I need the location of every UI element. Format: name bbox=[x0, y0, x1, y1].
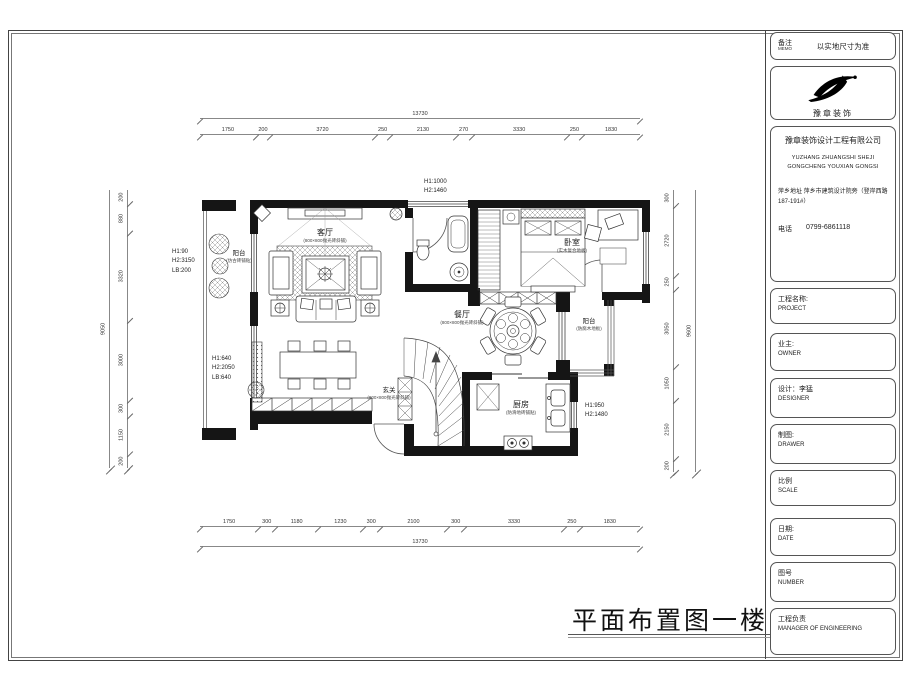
owner-block: 业主: OWNER bbox=[770, 333, 896, 371]
date-block: 日期: DATE bbox=[770, 518, 896, 556]
number-label: 图号 bbox=[778, 568, 888, 578]
company-address: 萍乡地址 萍乡市建筑设计院旁（登岸西路187-191#） bbox=[778, 187, 888, 209]
manager-label: 工程负责 bbox=[778, 614, 888, 624]
room-label-dining: 餐厅 (800×800抛光砖斜铺) bbox=[440, 310, 483, 325]
project-label-en: PROJECT bbox=[778, 306, 888, 312]
room-label-living: 客厅 (800×800抛光砖斜铺) bbox=[303, 228, 346, 243]
company-name: 豫章装饰设计工程有限公司 bbox=[778, 135, 888, 146]
dim-top-total: 13730 bbox=[200, 107, 640, 119]
project-label: 工程名称: bbox=[778, 294, 888, 304]
annotation-left-balcony: H1:90H2:3150LB:200 bbox=[172, 248, 195, 276]
drawer-label-en: DRAWER bbox=[778, 442, 888, 448]
date-label-en: DATE bbox=[778, 536, 888, 542]
phone-number: 0799-6861118 bbox=[806, 224, 850, 234]
dim-left-total: 9050 bbox=[98, 190, 110, 468]
scale-label-en: SCALE bbox=[778, 488, 888, 494]
drawing-title: 平面布置图一楼 bbox=[565, 601, 775, 637]
scale-label: 比例 bbox=[778, 476, 888, 486]
low-cabinet-band bbox=[252, 398, 372, 411]
dim-right-total: 9600 bbox=[684, 190, 696, 472]
kitchen-fixtures bbox=[477, 384, 570, 450]
drawing-sheet: 客厅 (800×800抛光砖斜铺) 餐厅 (800×800抛光砖斜铺) 玄关 (… bbox=[0, 0, 910, 690]
drawer-block: 制图: DRAWER bbox=[770, 424, 896, 464]
title-block-column: 备注 MEMO 以实地尺寸为准 豫章装饰 豫章装饰设计工程有限公司 YUZHAN… bbox=[770, 30, 898, 659]
company-logo-icon bbox=[805, 72, 861, 102]
dim-left-segments: 200880332030003001150200 bbox=[116, 190, 128, 468]
annotation-low-cabinet: H1:640H2:2050LB:640 bbox=[212, 355, 235, 383]
phone-label: 电话 bbox=[778, 224, 792, 234]
dim-right-segments: 3002720250305010502150200 bbox=[662, 190, 674, 472]
room-label-kitchen: 厨房 (防滑地砖铺贴) bbox=[506, 400, 536, 415]
project-block: 工程名称: PROJECT bbox=[770, 288, 896, 324]
room-label-entry: 玄关 (800×800抛光砖斜铺) bbox=[367, 387, 410, 400]
owner-label-en: OWNER bbox=[778, 351, 888, 357]
long-table bbox=[280, 341, 356, 389]
title-underline-1 bbox=[568, 634, 772, 635]
dim-top-segments: 17502003720250213027033302501830 bbox=[200, 123, 640, 135]
memo-block: 备注 MEMO 以实地尺寸为准 bbox=[770, 32, 896, 60]
owner-label: 业主: bbox=[778, 339, 888, 349]
logo-block: 豫章装饰 bbox=[770, 66, 896, 120]
designer-label: 设计：李猛 bbox=[778, 384, 888, 394]
brand-name: 豫章装饰 bbox=[778, 108, 888, 119]
manager-block: 工程负责 MANAGER OF ENGINEERING bbox=[770, 608, 896, 655]
dim-bottom-total: 13730 bbox=[200, 535, 640, 547]
company-block: 豫章装饰设计工程有限公司 YUZHANG ZHUANGSHI SHEJI GON… bbox=[770, 126, 896, 282]
memo-text: 以实地尺寸为准 bbox=[798, 41, 888, 52]
memo-label-en: MEMO bbox=[778, 47, 792, 52]
room-label-bedroom: 卧室 (实木复合地板) bbox=[557, 238, 587, 253]
date-label: 日期: bbox=[778, 524, 888, 534]
manager-label-en: MANAGER OF ENGINEERING bbox=[778, 626, 888, 632]
room-label-balcony-left: 阳台 (仿古砖铺贴) bbox=[226, 250, 252, 263]
annotation-kitchen-window: H1:950H2:1480 bbox=[585, 402, 608, 421]
designer-label-en: DESIGNER bbox=[778, 396, 888, 402]
stone-strip bbox=[252, 342, 262, 402]
title-underline-2 bbox=[568, 637, 772, 638]
designer-block: 设计：李猛 DESIGNER bbox=[770, 378, 896, 418]
number-block: 图号 NUMBER bbox=[770, 562, 896, 602]
scale-block: 比例 SCALE bbox=[770, 470, 896, 506]
drawer-label: 制图: bbox=[778, 430, 888, 440]
number-label-en: NUMBER bbox=[778, 580, 888, 586]
bathroom-fixtures bbox=[417, 216, 468, 281]
company-phone-row: 电话 0799-6861118 bbox=[778, 224, 888, 234]
dim-bottom-segments: 175030011801230300210030033302501830 bbox=[200, 515, 640, 527]
room-label-balcony-right: 阳台 (防腐木地板) bbox=[576, 318, 602, 331]
sliding-door bbox=[492, 374, 548, 378]
round-dining-table bbox=[480, 297, 547, 365]
company-name-en: YUZHANG ZHUANGSHI SHEJI GONGCHENG YOUXIA… bbox=[778, 154, 888, 173]
annotation-top-window: H1:1000H2:1460 bbox=[424, 178, 447, 197]
living-room-furniture bbox=[254, 205, 402, 322]
